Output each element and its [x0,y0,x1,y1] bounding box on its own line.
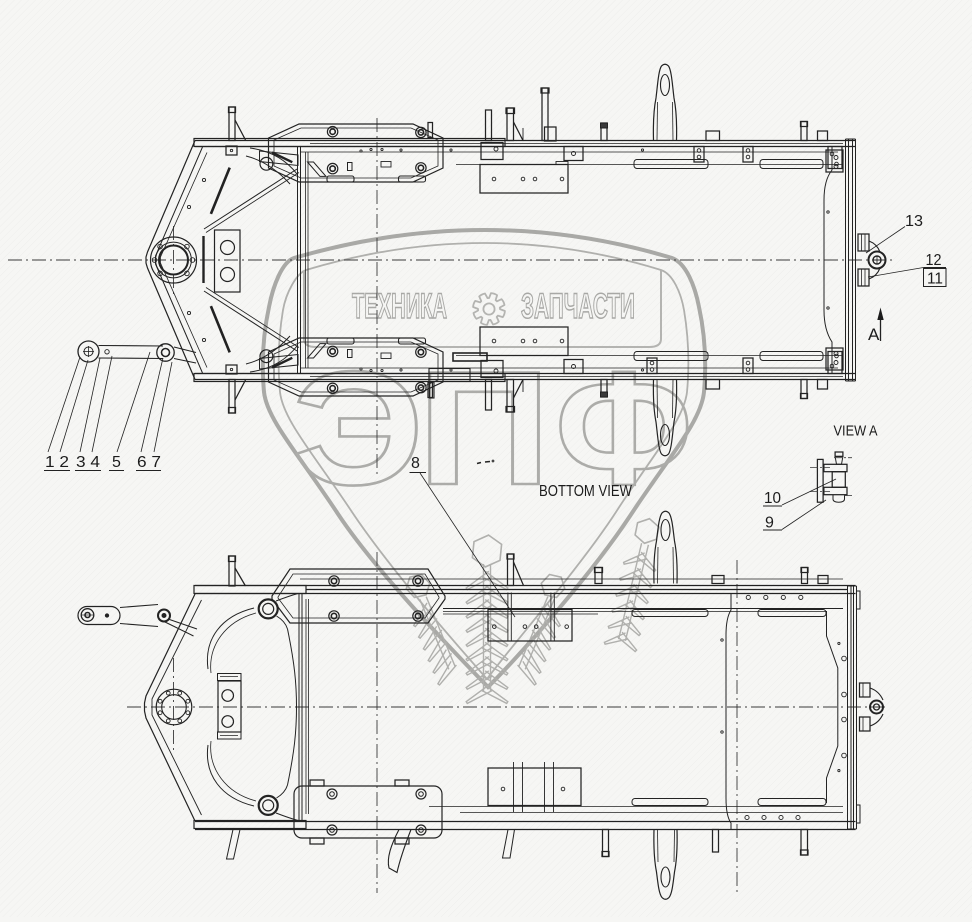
svg-text:П: П [417,337,551,518]
svg-text:8: 8 [411,455,420,472]
svg-text:10: 10 [764,490,781,507]
svg-text:1 2: 1 2 [45,454,69,471]
svg-text:ЗАПЧАСТИ: ЗАПЧАСТИ [521,287,635,326]
svg-text:A: A [868,325,880,344]
svg-text:12: 12 [926,252,942,269]
svg-text:5: 5 [112,454,121,471]
svg-text:11: 11 [927,271,943,288]
svg-text:ТЕХНИКА: ТЕХНИКА [352,287,447,326]
svg-text:6 7: 6 7 [137,454,161,471]
svg-text:3 4: 3 4 [76,454,100,471]
svg-text:Э: Э [292,338,424,519]
svg-text:BOTTOM VIEW: BOTTOM VIEW [539,483,632,500]
svg-text:9: 9 [765,515,774,532]
svg-text:13: 13 [905,213,923,230]
svg-text:VIEW A: VIEW A [834,423,878,440]
